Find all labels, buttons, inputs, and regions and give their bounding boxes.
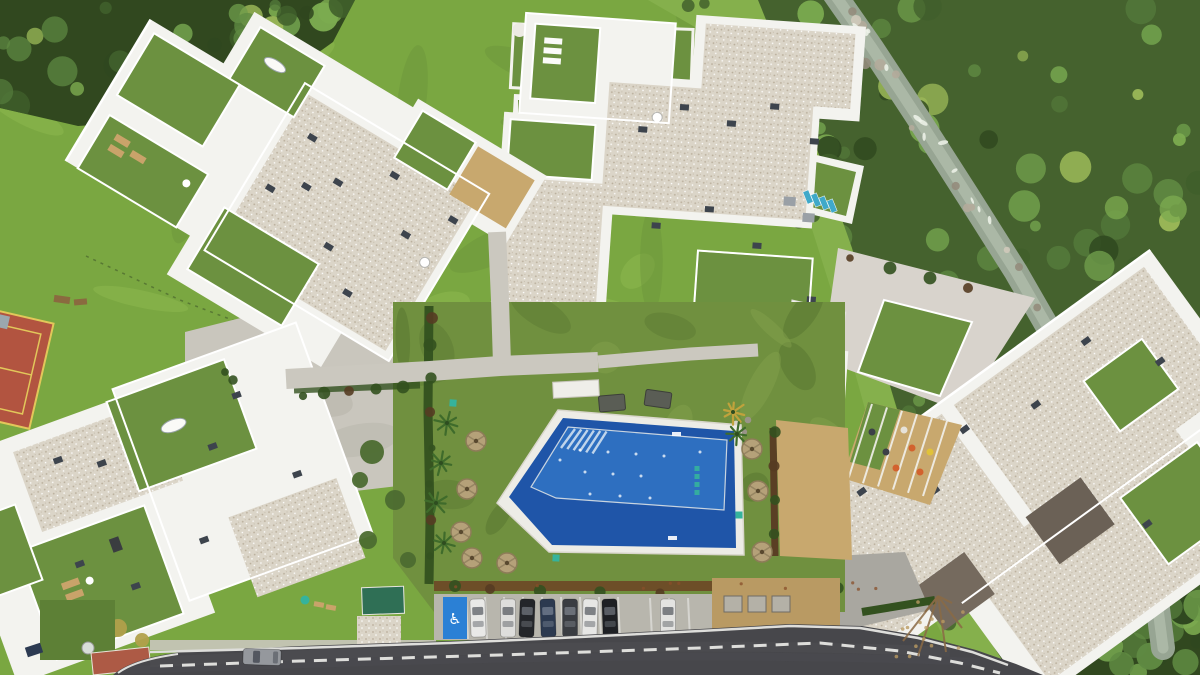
leaf-litter	[669, 582, 672, 585]
shrub	[846, 254, 854, 262]
palm-crown	[735, 432, 739, 436]
dry-foliage	[914, 644, 918, 648]
shrub	[884, 262, 897, 275]
garden-tree	[359, 531, 377, 549]
leaf-litter	[784, 587, 787, 590]
shrub	[424, 339, 437, 352]
pool-light	[640, 475, 643, 478]
teal-marker	[552, 554, 559, 561]
shrub	[769, 529, 779, 539]
shrub	[769, 426, 780, 437]
shrub	[924, 272, 937, 285]
rooftop-turf	[530, 24, 600, 103]
leaf-litter	[642, 587, 645, 590]
shrub	[769, 461, 780, 472]
tree-crown	[1016, 154, 1046, 184]
parked-car-body	[563, 599, 578, 637]
dry-foliage	[961, 610, 965, 614]
parked-car-body	[602, 599, 618, 638]
parked-car-body	[540, 599, 556, 638]
leaf-litter	[740, 582, 743, 585]
car-rear-window	[521, 621, 532, 627]
shade-canopy	[598, 394, 625, 412]
terrace-furniture	[909, 445, 916, 452]
parasol-pole	[459, 530, 463, 534]
straw-parasol	[497, 553, 517, 573]
straw-parasol	[748, 481, 768, 501]
stream-rock	[909, 125, 915, 131]
palm-crown	[731, 410, 735, 414]
parked-car	[519, 599, 535, 638]
sun-lounger	[543, 47, 561, 54]
parasol-pole	[750, 447, 754, 451]
tree-crown	[979, 130, 998, 149]
garden-tree	[360, 440, 384, 464]
shrub	[426, 515, 436, 525]
car-rear-window	[605, 621, 616, 627]
parasol-pole	[756, 489, 760, 493]
gravel-pad-texture	[357, 616, 401, 646]
garden-tree	[135, 633, 149, 647]
car-windshield	[542, 607, 553, 615]
roof-skylight	[638, 126, 647, 133]
tree-crown	[1172, 649, 1198, 675]
roof-skylight	[810, 138, 819, 145]
stream-rock	[1033, 304, 1041, 312]
garden-tree	[400, 552, 416, 568]
car-windshield	[253, 651, 260, 663]
tree-crown	[1141, 25, 1161, 45]
parked-car	[602, 599, 618, 638]
tree-crown	[300, 6, 314, 20]
dry-foliage	[930, 644, 934, 648]
tree-crown	[47, 56, 77, 86]
pool-light	[699, 451, 702, 454]
stream-rock	[1004, 247, 1010, 253]
gravel-roof-texture	[601, 82, 814, 220]
stream-rock	[874, 59, 886, 71]
dry-foliage	[930, 617, 934, 621]
parked-car	[540, 599, 556, 638]
parasol-pole	[505, 561, 509, 565]
utility-box	[724, 596, 742, 612]
decorative-rock	[745, 417, 752, 424]
stream-rock	[1015, 263, 1023, 271]
pool-lane-marker	[695, 482, 700, 487]
pool-ladder	[668, 536, 677, 540]
leaf-litter	[857, 588, 860, 591]
pool-light	[649, 497, 652, 500]
shrub	[318, 387, 330, 399]
car-windshield	[585, 607, 596, 615]
straw-parasol	[451, 522, 471, 542]
leaf-litter	[677, 582, 680, 585]
garden-tree	[385, 490, 405, 510]
ac-unit	[802, 213, 815, 223]
pool-light	[663, 455, 666, 458]
tree-crown	[926, 228, 949, 251]
pool-light	[559, 459, 562, 462]
pool-light	[579, 449, 582, 452]
roof-skylight	[705, 206, 714, 213]
dry-foliage	[918, 621, 922, 625]
parked-car-body	[501, 599, 516, 637]
dry-foliage	[906, 626, 910, 630]
parked-car	[582, 599, 598, 638]
parked-car-body	[519, 599, 535, 638]
tree-crown	[1105, 196, 1128, 219]
tree-crown	[277, 6, 297, 26]
courtyard-garden	[40, 600, 115, 660]
parked-car-body	[470, 599, 486, 638]
pool-light	[619, 495, 622, 498]
dry-foliage	[895, 655, 899, 659]
teal-marker	[735, 511, 742, 518]
pool-lane-marker	[695, 490, 700, 495]
palm-crown	[445, 421, 449, 425]
leaf-litter	[851, 581, 854, 584]
pool-light	[635, 453, 638, 456]
shrub	[221, 368, 229, 376]
ac-unit	[783, 196, 796, 206]
car-windshield	[565, 607, 576, 615]
shrub	[426, 312, 438, 324]
dry-foliage	[957, 646, 961, 650]
tree-crown	[1009, 190, 1041, 222]
straw-parasol	[466, 431, 486, 451]
whitewater	[922, 133, 925, 141]
dry-foliage	[916, 600, 920, 604]
tree-crown	[1051, 96, 1068, 113]
tree-crown	[1017, 51, 1028, 62]
car-rear-window	[273, 651, 278, 663]
straw-parasol	[457, 479, 477, 499]
car-windshield	[663, 607, 674, 615]
parked-car-body	[582, 599, 598, 638]
car-windshield	[522, 607, 533, 615]
dry-foliage	[941, 620, 945, 624]
terrace-furniture	[893, 465, 900, 472]
palm-crown	[434, 501, 438, 505]
shrub	[770, 495, 780, 505]
palm-crown	[442, 541, 446, 545]
roof-skylight	[770, 103, 779, 110]
green-roof-shed	[362, 586, 405, 614]
tree-crown	[1084, 251, 1114, 281]
stream-rock	[968, 204, 975, 211]
shrub	[426, 552, 433, 559]
teal-marker	[449, 399, 456, 406]
utility-box	[748, 596, 766, 612]
garden-tree	[352, 472, 368, 488]
picnic-table	[74, 298, 87, 305]
shrub	[228, 375, 237, 384]
straw-parasol	[742, 439, 762, 459]
parked-car	[563, 599, 578, 637]
pool-light	[607, 451, 610, 454]
parasol-pole	[465, 487, 469, 491]
handicap-symbol: ♿	[448, 610, 461, 628]
garden-steps	[553, 380, 600, 398]
tree-crown	[1050, 66, 1067, 83]
tree-crown	[7, 36, 32, 61]
shrub	[344, 386, 354, 396]
satellite-dish	[652, 112, 663, 123]
footpath-north	[497, 232, 502, 364]
dry-foliage	[924, 626, 928, 630]
parked-car	[501, 599, 516, 637]
dry-foliage	[922, 637, 926, 641]
leaf-litter	[536, 584, 539, 587]
dry-foliage	[908, 655, 912, 659]
tree-crown	[42, 16, 68, 42]
sand-bed	[776, 420, 852, 560]
tree-crown	[1047, 246, 1071, 270]
car-rear-window	[503, 621, 514, 627]
parasol-pole	[760, 550, 764, 554]
stream-rock	[848, 7, 856, 15]
leaf-litter	[454, 585, 457, 588]
tree-crown	[100, 2, 112, 14]
tree-crown	[1132, 89, 1143, 100]
car-windshield	[503, 607, 514, 615]
terrace-furniture	[927, 449, 934, 456]
palm-crown	[439, 461, 443, 465]
roof-skylight	[727, 120, 736, 127]
car-rear-window	[565, 621, 576, 627]
pool-light	[612, 473, 615, 476]
pool-light	[584, 471, 587, 474]
parked-car	[470, 599, 486, 638]
roof-skylight	[807, 296, 816, 303]
pool-light	[589, 493, 592, 496]
tree-crown	[968, 64, 981, 77]
moving-car	[243, 648, 282, 665]
car-rear-window	[663, 621, 674, 627]
aerial-photo: Top-down aerial view of a white modern a…	[0, 0, 1200, 675]
shrub	[425, 372, 436, 383]
pool-lane-marker	[695, 466, 700, 471]
aerial-photo-stage: Top-down aerial view of a white modern a…	[0, 0, 1200, 675]
tree-crown	[1030, 221, 1041, 232]
pool-lane-marker	[695, 474, 700, 479]
shrub	[397, 381, 410, 394]
tree-crown	[854, 137, 877, 160]
fountain	[82, 642, 94, 654]
sun-lounger	[543, 57, 561, 64]
shrub	[429, 445, 436, 452]
terrace-furniture	[917, 469, 924, 476]
shrub	[963, 283, 973, 293]
roof-skylight	[752, 242, 761, 249]
tree-crown	[70, 82, 84, 96]
car-rear-window	[543, 621, 554, 627]
terrace-furniture	[883, 449, 890, 456]
shrub	[425, 407, 435, 417]
tree-crown	[1060, 151, 1092, 183]
pool-ladder	[672, 432, 681, 436]
straw-parasol	[462, 548, 482, 568]
road-vehicles	[243, 648, 282, 665]
roof-skylight	[680, 104, 689, 111]
shade-canopy	[644, 389, 672, 408]
stream-rock	[952, 182, 960, 190]
tree-crown	[207, 38, 221, 52]
shrub	[425, 480, 432, 487]
tree-crown	[1122, 163, 1152, 193]
car-windshield	[472, 607, 483, 615]
terrace-furniture	[869, 429, 876, 436]
leaf-litter	[874, 587, 877, 590]
parasol-pole	[474, 439, 478, 443]
sun-lounger	[544, 37, 562, 44]
roof-skylight	[651, 222, 660, 229]
shrub	[299, 392, 307, 400]
parasol-pole	[470, 556, 474, 560]
tree-crown	[1160, 196, 1187, 223]
car-rear-window	[473, 621, 484, 627]
terrace-furniture	[901, 427, 908, 434]
shrub	[485, 584, 495, 594]
tree-crown	[1173, 133, 1186, 146]
shrub	[371, 384, 382, 395]
spa-tub	[301, 596, 310, 605]
straw-parasol	[752, 542, 772, 562]
car-windshield	[604, 607, 615, 615]
car-rear-window	[584, 621, 595, 627]
stream-rock	[892, 70, 900, 78]
dry-foliage	[901, 627, 905, 631]
utility-box	[772, 596, 790, 612]
